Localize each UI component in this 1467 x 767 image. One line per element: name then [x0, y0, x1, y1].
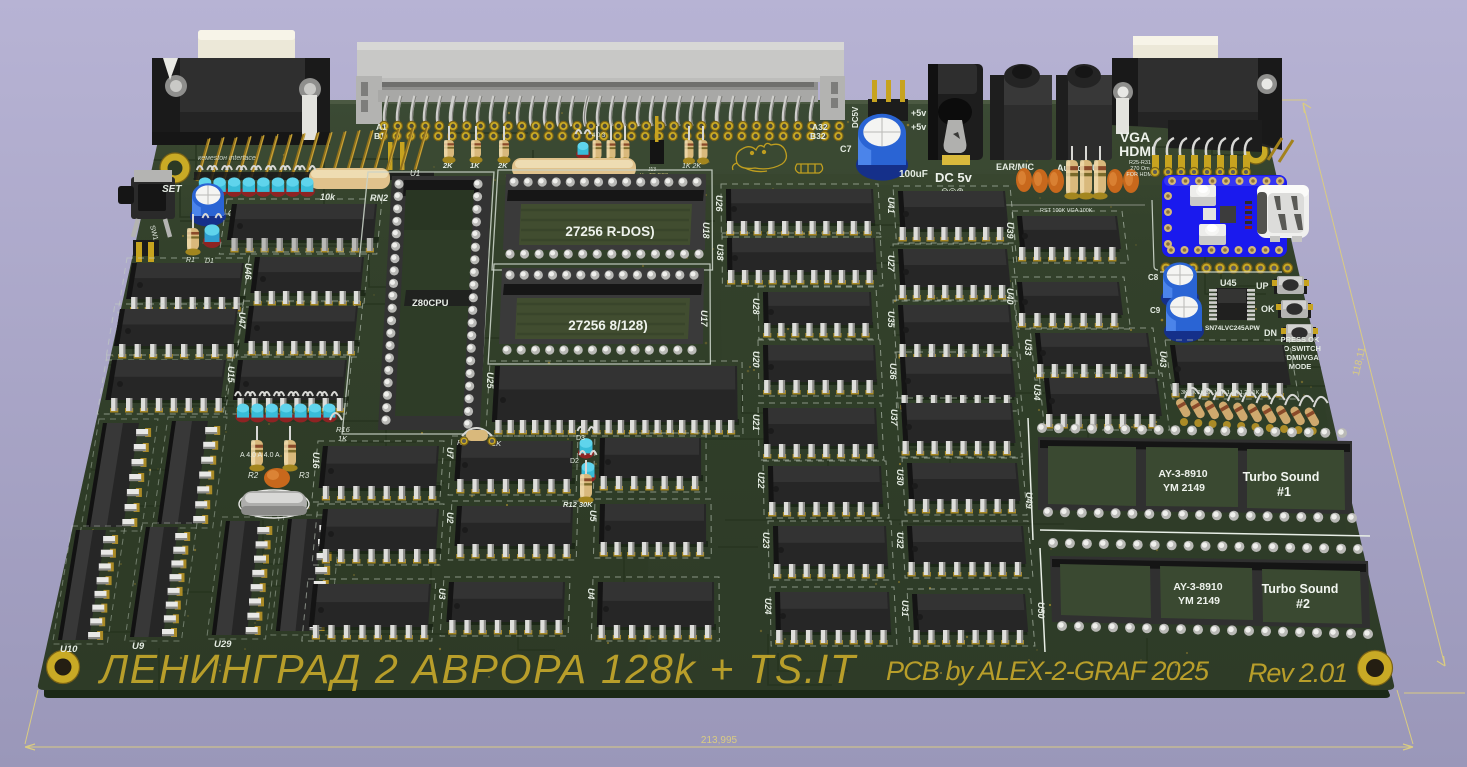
- svg-text:2K: 2K: [497, 161, 508, 170]
- svg-text:100uF: 100uF: [899, 169, 928, 180]
- svg-text:U16: U16: [311, 452, 321, 470]
- svg-text:U35: U35: [886, 311, 896, 329]
- svg-text:U34: U34: [1032, 384, 1042, 401]
- svg-text:DN: DN: [1264, 328, 1277, 338]
- svg-text:U46: U46: [243, 263, 253, 281]
- svg-text:U26: U26: [714, 195, 724, 213]
- svg-text:AY-3-8910: AY-3-8910: [1173, 581, 1222, 593]
- svg-text:U10: U10: [60, 644, 78, 655]
- svg-text:#1: #1: [1277, 485, 1291, 499]
- svg-text:U5: U5: [588, 510, 598, 522]
- svg-text:U2: U2: [445, 512, 455, 524]
- svg-text:AY-3-8910: AY-3-8910: [1158, 468, 1207, 480]
- svg-text:OK: OK: [1261, 304, 1275, 314]
- svg-text:кемеstон interface: кемеstон interface: [198, 155, 256, 162]
- svg-text:U45: U45: [1220, 278, 1237, 288]
- svg-text:DC5V: DC5V: [851, 106, 860, 128]
- svg-text:Turbo Sound: Turbo Sound: [1243, 470, 1320, 484]
- svg-text:U15: U15: [226, 366, 236, 384]
- svg-text:U4: U4: [586, 588, 596, 600]
- svg-text:R3: R3: [299, 471, 310, 480]
- svg-text:U33: U33: [1023, 339, 1033, 356]
- svg-text:HDMI/VGA: HDMI/VGA: [1281, 353, 1319, 362]
- svg-text:U30: U30: [895, 469, 905, 486]
- svg-text:U18: U18: [701, 222, 711, 239]
- svg-text:U39: U39: [1005, 222, 1015, 239]
- svg-text:U23: U23: [761, 532, 771, 549]
- svg-text:A 4.0 A 4.0 A: A 4.0 A 4.0 A: [240, 452, 280, 459]
- svg-text:#2: #2: [1296, 597, 1310, 611]
- svg-text:U25: U25: [485, 372, 495, 390]
- svg-text:ЛЕНИНГРАД 2 АВРОРА 128k + TS.I: ЛЕНИНГРАД 2 АВРОРА 128k + TS.IT: [97, 646, 858, 692]
- svg-text:RN2: RN2: [370, 193, 388, 203]
- svg-text:U1: U1: [410, 169, 420, 178]
- svg-text:Turbo Sound: Turbo Sound: [1262, 582, 1339, 596]
- svg-text:U40: U40: [1005, 288, 1015, 305]
- svg-text:YM 2149: YM 2149: [1178, 595, 1220, 607]
- svg-text:C8: C8: [1148, 273, 1159, 282]
- svg-text:SN74LVC245APW: SN74LVC245APW: [1205, 325, 1261, 332]
- svg-text:B32: B32: [810, 131, 826, 141]
- svg-text:U31: U31: [900, 600, 910, 617]
- svg-text:1K: 1K: [470, 161, 480, 170]
- svg-text:U37: U37: [889, 409, 899, 427]
- svg-text:U24: U24: [763, 598, 773, 615]
- svg-text:U20: U20: [751, 351, 761, 368]
- svg-text:U50: U50: [1036, 602, 1046, 619]
- svg-text:U3: U3: [437, 588, 447, 600]
- svg-text:TO SWITCH: TO SWITCH: [1279, 344, 1321, 353]
- svg-text:R12 30K: R12 30K: [563, 500, 593, 509]
- svg-text:Z80CPU: Z80CPU: [412, 298, 449, 309]
- svg-text:DC 5v: DC 5v: [935, 170, 973, 185]
- svg-text:D3: D3: [576, 435, 585, 442]
- svg-text:U36: U36: [888, 363, 898, 381]
- svg-text:1K: 1K: [338, 434, 348, 443]
- svg-text:U49: U49: [1024, 492, 1034, 509]
- svg-text:U21: U21: [751, 414, 761, 431]
- svg-text:10k: 10k: [320, 192, 336, 202]
- svg-text:3K 1K 2K 3K 1,2K 1,2K 1,2K 1K: 3K 1K 2K 3K 1,2K 1,2K 1,2K 1K 1K: [1181, 390, 1268, 396]
- svg-text:+5v: +5v: [911, 122, 926, 132]
- svg-text:U43: U43: [1158, 351, 1168, 368]
- svg-text:U41: U41: [886, 197, 896, 214]
- svg-text:U32: U32: [895, 532, 905, 549]
- svg-text:+5v: +5v: [911, 108, 926, 118]
- svg-text:U28: U28: [751, 298, 761, 315]
- svg-text:U38: U38: [715, 244, 725, 261]
- svg-text:1K 2K: 1K 2K: [682, 163, 701, 170]
- svg-text:2K: 2K: [442, 161, 453, 170]
- svg-text:Rev 2.01: Rev 2.01: [1248, 658, 1348, 688]
- svg-text:U27: U27: [886, 255, 896, 273]
- svg-text:27256 8/128): 27256 8/128): [568, 318, 648, 333]
- svg-text:C7: C7: [840, 144, 852, 154]
- svg-text:UP: UP: [1256, 281, 1269, 291]
- svg-text:U22: U22: [756, 472, 766, 489]
- svg-text:MODE: MODE: [1289, 362, 1312, 371]
- svg-text:U7: U7: [445, 447, 455, 459]
- svg-text:4 0 3: 4 0 3: [592, 133, 606, 139]
- svg-text:HDMI: HDMI: [1119, 143, 1155, 159]
- svg-text:R16: R16: [336, 425, 351, 434]
- svg-text:U47: U47: [237, 312, 247, 330]
- svg-text:U17: U17: [699, 310, 709, 328]
- svg-text:YM 2149: YM 2149: [1163, 482, 1205, 494]
- svg-text:SET: SET: [162, 184, 182, 195]
- svg-text:PCB by ALEX-2-GRAF 2025: PCB by ALEX-2-GRAF 2025: [886, 656, 1210, 686]
- svg-text:FOR HDMI: FOR HDMI: [1126, 172, 1154, 178]
- svg-text:C9: C9: [1150, 306, 1161, 315]
- svg-text:R2: R2: [248, 471, 259, 480]
- svg-text:D2: D2: [570, 458, 579, 465]
- svg-text:213,995: 213,995: [701, 735, 738, 746]
- svg-text:27256 R-DOS): 27256 R-DOS): [565, 224, 654, 239]
